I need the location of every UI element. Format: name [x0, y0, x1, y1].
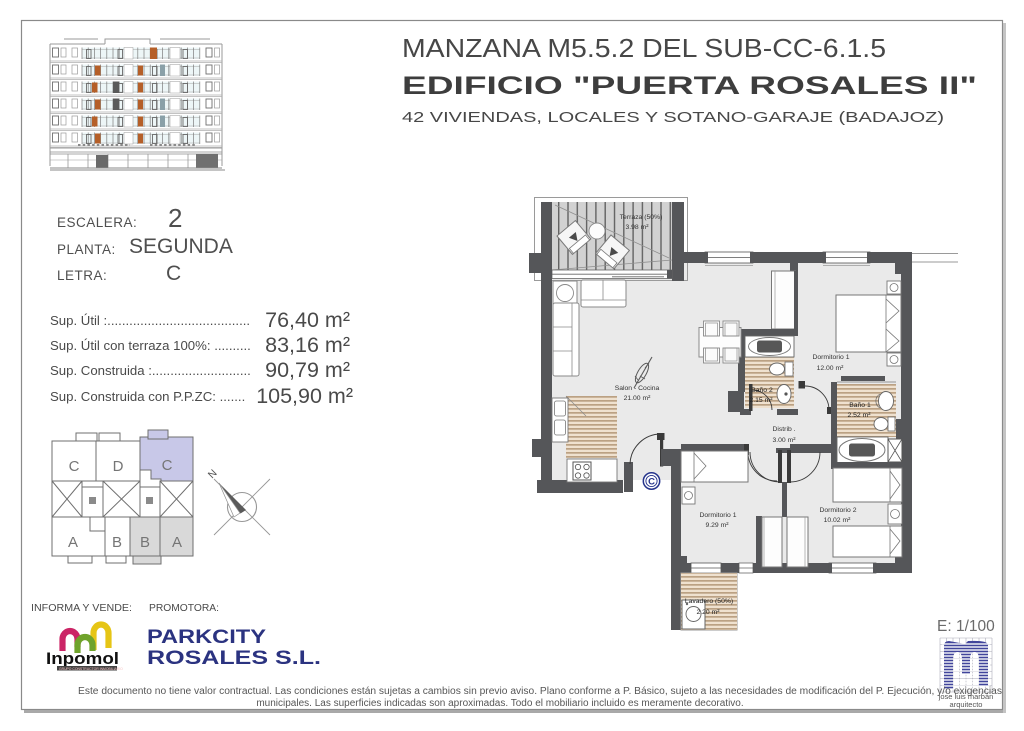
- svg-text:D: D: [113, 458, 124, 475]
- svg-text:A: A: [172, 534, 182, 551]
- svg-text:2: 2: [168, 203, 182, 233]
- svg-text:Distrib .: Distrib .: [772, 426, 795, 433]
- svg-text:EDIFICIO "PUERTA ROSALES II": EDIFICIO "PUERTA ROSALES II": [402, 72, 977, 100]
- svg-text:Dormitorio 2: Dormitorio 2: [819, 507, 856, 514]
- svg-text:2.20 m²: 2.20 m²: [696, 609, 720, 616]
- svg-text:B: B: [112, 534, 122, 551]
- svg-text:B: B: [140, 534, 150, 551]
- svg-text:105,90 m²: 105,90 m²: [256, 384, 353, 408]
- svg-text:Inpomol: Inpomol: [46, 650, 119, 668]
- svg-text:Salon - Cocina: Salon - Cocina: [615, 385, 660, 392]
- svg-text:Sup. Útil :...................: Sup. Útil :.............................…: [50, 313, 250, 328]
- svg-text:GRUPO CONSTRUCTOR INMOBILIARIO: GRUPO CONSTRUCTOR INMOBILIARIO: [59, 667, 123, 671]
- svg-text:C: C: [162, 457, 173, 474]
- svg-text:PROMOTORA:: PROMOTORA:: [149, 602, 219, 614]
- svg-text:Sup. Construida :.............: Sup. Construida :.......................…: [50, 363, 251, 378]
- svg-text:9.29 m²: 9.29 m²: [705, 522, 729, 529]
- svg-text:Lavadero (50%): Lavadero (50%): [685, 598, 733, 605]
- svg-text:2.15 m²: 2.15 m²: [749, 397, 773, 404]
- svg-text:A: A: [68, 534, 78, 551]
- svg-text:C: C: [648, 477, 655, 488]
- svg-text:Sup. Construida con P.P.ZC: ..: Sup. Construida con P.P.ZC: .......: [50, 389, 245, 404]
- svg-text:PARKCITY: PARKCITY: [147, 626, 266, 648]
- svg-text:INFORMA Y VENDE:: INFORMA Y VENDE:: [31, 602, 132, 614]
- svg-text:ROSALES S.L.: ROSALES S.L.: [147, 647, 321, 669]
- svg-text:3.98 m²: 3.98 m²: [625, 224, 649, 231]
- svg-text:Terraza (50%): Terraza (50%): [620, 214, 663, 221]
- svg-text:Dormitorio 1: Dormitorio 1: [812, 354, 849, 361]
- svg-text:3.00 m²: 3.00 m²: [772, 437, 796, 444]
- svg-text:21.00 m²: 21.00 m²: [624, 395, 652, 402]
- svg-text:arquitecto: arquitecto: [950, 700, 983, 709]
- svg-text:Baño 1: Baño 1: [849, 402, 871, 409]
- svg-text:LETRA:: LETRA:: [57, 268, 107, 283]
- svg-text:Este documento no tiene valor: Este documento no tiene valor contractua…: [78, 686, 1002, 697]
- svg-text:PLANTA:: PLANTA:: [57, 242, 116, 257]
- svg-text:MANZANA M5.5.2 DEL SUB-CC-6.1.: MANZANA M5.5.2 DEL SUB-CC-6.1.5: [402, 33, 886, 63]
- svg-text:12.00 m²: 12.00 m²: [817, 365, 845, 372]
- svg-text:Sup. Útil con terraza 100%: ..: Sup. Útil con terraza 100%: ..........: [50, 338, 251, 353]
- svg-text:42 VIVIENDAS, LOCALES Y SOTANO: 42 VIVIENDAS, LOCALES Y SOTANO-GARAJE (B…: [402, 109, 944, 126]
- svg-text:2.52 m²: 2.52 m²: [847, 412, 871, 419]
- svg-text:E: 1/100: E: 1/100: [937, 618, 995, 635]
- svg-text:SEGUNDA: SEGUNDA: [129, 235, 233, 258]
- svg-text:90,79 m²: 90,79 m²: [265, 358, 350, 382]
- svg-text:N: N: [206, 467, 220, 481]
- svg-text:C: C: [166, 262, 181, 285]
- svg-text:C: C: [69, 458, 80, 475]
- svg-text:Dormitorio 1: Dormitorio 1: [699, 512, 736, 519]
- svg-text:Baño 2: Baño 2: [751, 387, 773, 394]
- svg-text:10.02 m²: 10.02 m²: [824, 517, 852, 524]
- svg-text:ESCALERA:: ESCALERA:: [57, 215, 137, 230]
- svg-text:municipales. Las superficies i: municipales. Las superficies indicadas s…: [256, 698, 743, 709]
- svg-text:76,40 m²: 76,40 m²: [265, 308, 350, 332]
- svg-text:83,16 m²: 83,16 m²: [265, 333, 350, 357]
